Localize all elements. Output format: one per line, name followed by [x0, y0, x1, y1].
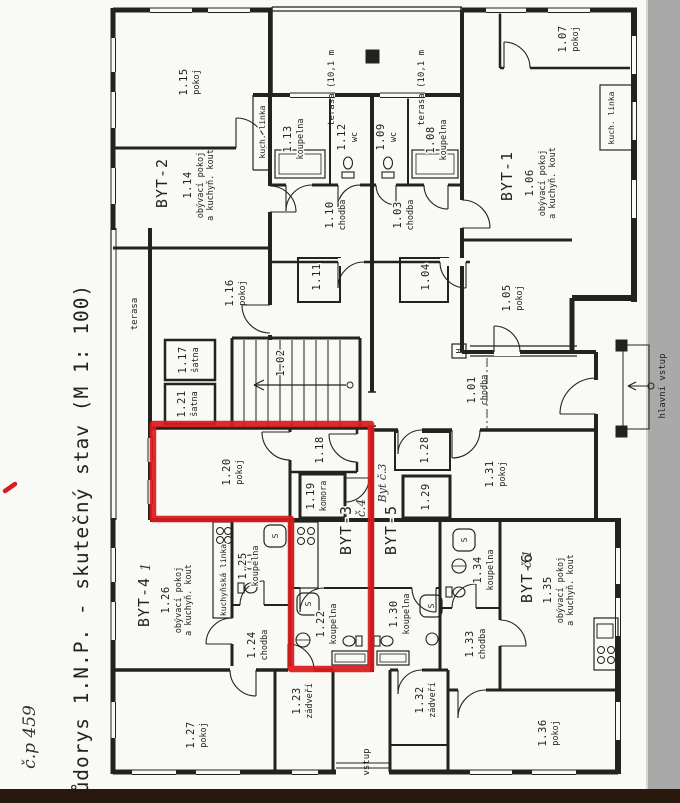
annotation-kuch-linka-a: kuch. linka — [258, 105, 267, 158]
room-name: pokoj — [192, 69, 202, 95]
shower-letter: S — [304, 601, 313, 606]
room-name: koupelna — [486, 550, 496, 591]
annotation-vstup: vstup — [362, 748, 372, 775]
room-number: 1.12 — [336, 123, 348, 150]
side-title: Půdorys 1.N.P. - skutečný stav (M 1: 100… — [70, 284, 93, 803]
room-number: 1.11 — [311, 263, 323, 290]
room-number: 1.25 — [237, 552, 249, 579]
room-number: 1.13 — [282, 125, 294, 152]
room-number: 1.22 — [315, 610, 327, 637]
apartment-name: BYT-5 — [382, 505, 400, 555]
room-name: obývací pokoj — [196, 152, 206, 219]
scanned-floorplan-page: 1.15 pokoj BYT-2 1.14 obývací pokoj a ku… — [0, 0, 680, 803]
handwritten-note-byt3: č.4 — [354, 499, 368, 517]
kitchen-line-label: kuchyňská linka — [219, 544, 228, 616]
hydrant-label: H — [455, 348, 464, 353]
room-name: obývací pokoj — [556, 557, 566, 624]
room-number: 1.33 — [464, 630, 476, 657]
apartment-label-byt1: BYT-1 — [498, 151, 516, 201]
room-number: 1.03 — [392, 201, 404, 228]
room-name: pokoj — [235, 459, 245, 485]
handwritten-text: č.p 459 — [20, 705, 40, 769]
shower-letter-3: S — [427, 603, 436, 608]
terrace-label: terasa — [130, 298, 140, 331]
room-number: 1.15 — [178, 68, 190, 95]
room-name: wc — [389, 132, 399, 142]
room-label-1-29: 1.29 — [420, 483, 432, 510]
apartment-label-byt3: BYT-3 — [337, 505, 355, 555]
room-name: obývací pokoj — [538, 150, 548, 217]
shower-letter-4: S — [460, 537, 469, 542]
room-name: pokoj — [498, 461, 508, 487]
annotation-terasa-top-right: terasa (10,1 m — [417, 50, 427, 126]
kitchen-line-label: kuch. linka — [258, 105, 267, 158]
scanner-dark-edge — [0, 789, 680, 803]
room-name: zádveří — [428, 682, 438, 718]
room-name: chodba — [478, 629, 488, 660]
room-number: 1.06 — [524, 169, 536, 196]
room-name: chodba — [406, 200, 416, 231]
room-number: 1.35 — [542, 576, 554, 603]
room-name: chodba — [338, 200, 348, 231]
shower-letter: S — [427, 603, 436, 608]
apartment-name: BYT-2 — [153, 158, 171, 208]
room-name: chodba — [260, 630, 270, 661]
terrace-label: terasa (10,1 m — [417, 50, 427, 126]
kitchen-line-label: kuch. linka — [607, 91, 616, 144]
handwritten-text: Byt č.3 — [376, 464, 389, 504]
room-number: 1.18 — [314, 436, 326, 463]
handwritten-note-byt5: Byt č.3 — [376, 464, 389, 504]
entrance-label: vstup — [362, 748, 372, 775]
room-number: 1.31 — [484, 460, 496, 487]
hydrant-letter: H — [455, 348, 464, 353]
apartment-name: BYT-3 — [337, 505, 355, 555]
shower-letter-2: S — [304, 601, 313, 606]
room-number: 1.23 — [291, 687, 303, 714]
room-number: 1.07 — [557, 25, 569, 52]
room-number: 1.09 — [375, 123, 387, 150]
room-name: pokoj — [571, 26, 581, 52]
room-name: šatna — [190, 347, 201, 373]
room-name: a kuchyň. kout — [206, 149, 216, 221]
room-number: 1.20 — [221, 458, 233, 485]
room-number: 1.08 — [425, 126, 437, 153]
room-number: 1.10 — [324, 201, 336, 228]
room-name: koupelna — [296, 119, 306, 160]
room-name: šatna — [189, 391, 200, 417]
room-name: koupelna — [439, 120, 449, 161]
room-name: chodba — [480, 375, 490, 406]
room-number: 1.02 — [275, 349, 287, 376]
annotation-kuch-linka-b: kuch. linka — [607, 91, 616, 144]
room-number: 1.21 — [176, 390, 188, 417]
room-name: a kuchyň. kout — [548, 147, 558, 219]
handwritten-text: č.4 — [354, 499, 368, 517]
room-label-1-28: 1.28 — [419, 436, 431, 463]
annotation-kuchynska-linka: kuchyňská linka — [219, 544, 228, 616]
shower-letter-1: S — [271, 533, 280, 538]
room-label-1-04: 1.04 — [420, 263, 432, 290]
annotation-hlavni-vstup: hlavní vstup — [658, 353, 668, 418]
room-name: wc — [350, 132, 360, 142]
room-name: obývací pokoj — [174, 567, 184, 634]
room-number: 1.36 — [537, 719, 549, 746]
room-name: pokoj — [551, 720, 561, 746]
apartment-name: BYT-1 — [498, 151, 516, 201]
room-name: koupelna — [402, 594, 412, 635]
room-number: 1.30 — [388, 600, 400, 627]
apartment-name: BYT-4 — [135, 577, 153, 627]
room-number: 1.16 — [224, 279, 236, 306]
room-name: pokoj — [238, 280, 248, 306]
room-name: pokoj — [199, 722, 209, 748]
annotation-terasa-top-left: terasa (10,1 m — [327, 50, 337, 126]
annotation-terasa-left: terasa — [130, 298, 140, 331]
handwritten-house-number: č.p 459 — [20, 705, 40, 769]
room-name: komora — [319, 481, 329, 512]
floorplan-svg: 1.15 pokoj BYT-2 1.14 obývací pokoj a ku… — [0, 0, 680, 803]
drawing-title: Půdorys 1.N.P. - skutečný stav (M 1: 100… — [70, 284, 93, 803]
room-name: koupelna — [329, 604, 339, 645]
room-number: 1.32 — [414, 686, 426, 713]
room-number: 1.17 — [177, 346, 189, 373]
handwritten-note-byt6: č.1 — [520, 550, 534, 568]
room-label-1-02: 1.02 — [275, 349, 287, 376]
shower-letter: S — [271, 533, 280, 538]
room-name: a kuchyň. kout — [566, 554, 576, 626]
room-number: 1.05 — [501, 284, 513, 311]
room-number: 1.26 — [160, 586, 172, 613]
room-number: 1.28 — [419, 436, 431, 463]
room-name: pokoj — [515, 285, 525, 311]
room-number: 1.24 — [246, 631, 258, 658]
handwritten-text: 1 — [139, 563, 154, 571]
apartment-label-byt4: BYT-4 — [135, 577, 153, 627]
room-label-1-18: 1.18 — [314, 436, 326, 463]
handwritten-note-byt4: 1 — [139, 563, 154, 571]
room-number: 1.29 — [420, 483, 432, 510]
room-number: 1.04 — [420, 263, 432, 290]
room-number: 1.14 — [182, 171, 194, 198]
apartment-label-byt2: BYT-2 — [153, 158, 171, 208]
main-entrance-label: hlavní vstup — [658, 353, 668, 418]
apartment-label-byt5: BYT-5 — [382, 505, 400, 555]
room-number: 1.34 — [472, 556, 484, 583]
handwritten-text: č.1 — [520, 550, 534, 568]
room-number: 1.01 — [466, 376, 478, 403]
room-number: 1.19 — [305, 482, 317, 509]
room-name: zádveří — [305, 683, 315, 719]
room-number: 1.27 — [185, 721, 197, 748]
terrace-label: terasa (10,1 m — [327, 50, 337, 126]
shower-letter: S — [460, 537, 469, 542]
room-name: a kuchyň. kout — [184, 564, 194, 636]
room-name: koupelna — [251, 546, 261, 587]
room-label-1-11: 1.11 — [311, 263, 323, 290]
